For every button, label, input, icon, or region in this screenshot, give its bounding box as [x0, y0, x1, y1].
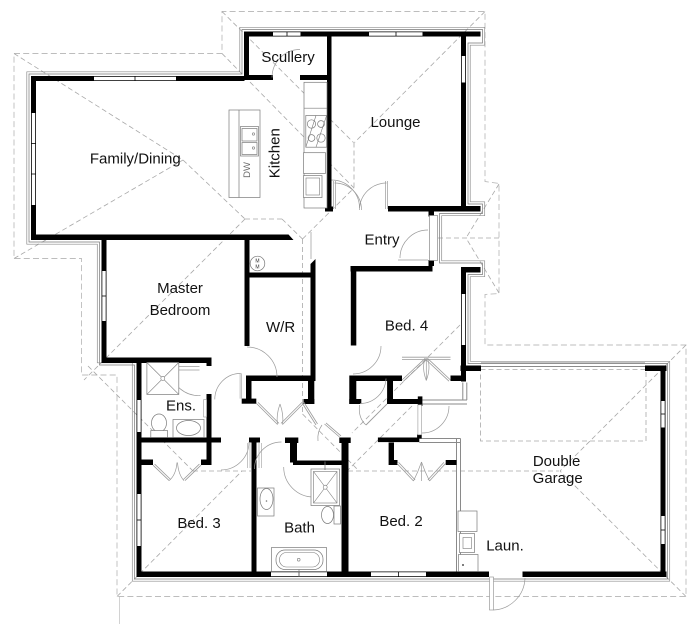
svg-text:Double: Double: [533, 453, 581, 470]
svg-text:Bedroom: Bedroom: [150, 302, 211, 319]
svg-text:Family/Dining: Family/Dining: [90, 151, 181, 168]
svg-text:Bed. 4: Bed. 4: [385, 318, 428, 335]
svg-text:DW: DW: [242, 162, 253, 178]
svg-text:Ens.: Ens.: [166, 398, 196, 415]
svg-text:Scullery: Scullery: [261, 49, 315, 66]
svg-text:Entry: Entry: [364, 232, 400, 249]
svg-text:M: M: [255, 265, 259, 271]
svg-text:Bed. 2: Bed. 2: [379, 513, 422, 530]
svg-text:Bath: Bath: [284, 520, 315, 537]
svg-text:Garage: Garage: [533, 470, 583, 487]
svg-text:Lounge: Lounge: [370, 114, 420, 131]
svg-text:W/R: W/R: [266, 319, 295, 336]
svg-text:Kitchen: Kitchen: [267, 128, 284, 178]
svg-text:Bed. 3: Bed. 3: [177, 515, 220, 532]
svg-text:Master: Master: [157, 280, 203, 297]
svg-text:Laun.: Laun.: [486, 538, 524, 555]
